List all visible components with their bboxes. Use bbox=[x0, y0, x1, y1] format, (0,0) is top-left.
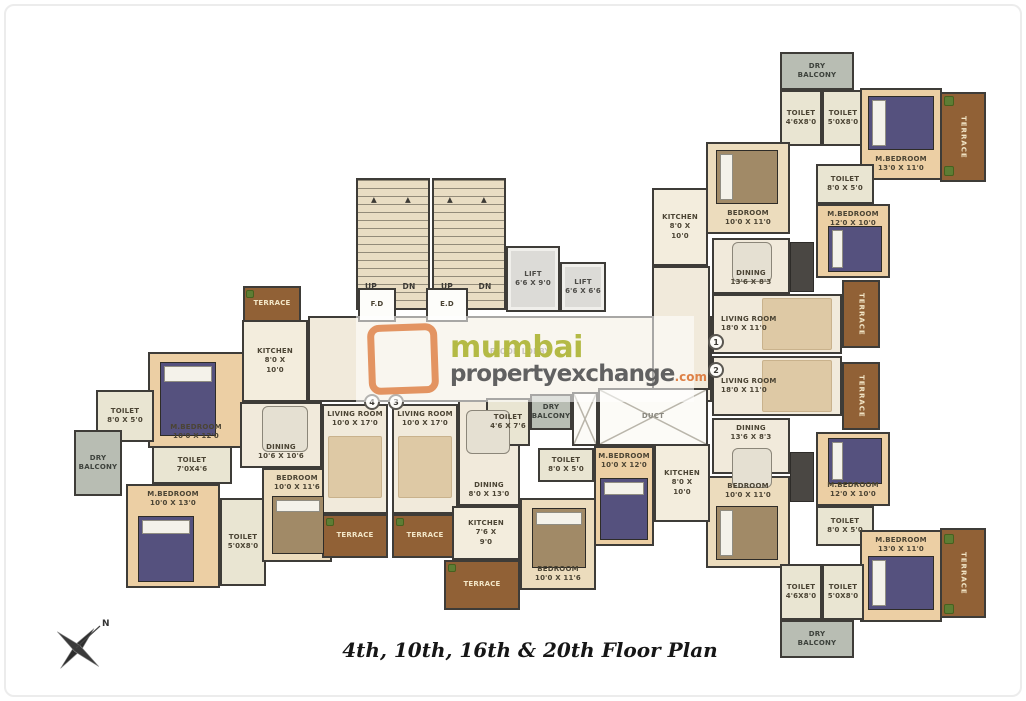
room-label-mbedroom-1b: M.BEDROOM12'0 X 10'0 bbox=[827, 210, 879, 228]
unit-marker-1: 1 bbox=[708, 334, 724, 350]
room-drybalcony-right-2: DRYBALCONY bbox=[780, 620, 854, 658]
room-label-terrace-2-side: TERRACE bbox=[856, 375, 865, 418]
bed-brown-furniture bbox=[272, 496, 324, 554]
room-label-toilet-2b: TOILET5'0X8'0 bbox=[828, 583, 859, 601]
bed-pillow bbox=[142, 520, 190, 534]
bed-pillow bbox=[832, 230, 843, 268]
bed-pillow bbox=[604, 482, 644, 495]
rug-furniture bbox=[398, 436, 452, 498]
wardrobe-furniture bbox=[790, 452, 814, 502]
room-label-dining-left: DINING10'6 X 10'6 bbox=[258, 443, 304, 461]
watermark-brand-suffix: .com bbox=[675, 371, 707, 383]
bed-pillow bbox=[276, 500, 320, 512]
room-label-up-label-1: UP bbox=[365, 282, 377, 292]
room-label-mbedroom-center: M.BEDROOM10'0 X 12'0 bbox=[598, 452, 650, 470]
floor-plan-image: DINING8'0 X 13'0LIFT6'6 X 9'0LIFT6'6 X 6… bbox=[0, 0, 1026, 701]
room-toilet-2a: TOILET4'6X8'0 bbox=[780, 564, 822, 620]
plant-furniture bbox=[396, 518, 404, 526]
room-label-toilet-left-3: TOILET5'0X8'0 bbox=[228, 533, 259, 551]
bed-brown-furniture bbox=[716, 150, 778, 204]
bed-pillow bbox=[720, 510, 733, 556]
room-label-dining-center: DINING8'0 X 13'0 bbox=[469, 481, 510, 499]
room-stair-arrow-4: ▲ bbox=[476, 194, 492, 206]
room-toilet-center-2: TOILET8'0 X 5'0 bbox=[538, 448, 594, 482]
room-lift-2: LIFT6'6 X 6'6 bbox=[560, 262, 606, 312]
room-toilet-1b: TOILET5'0X8'0 bbox=[822, 90, 864, 146]
room-label-toilet-2c: TOILET8'0 X 5'0 bbox=[827, 517, 863, 535]
plant-furniture bbox=[246, 290, 254, 298]
room-label-stair-arrow-3: ▲ bbox=[447, 195, 453, 205]
room-label-toilet-1a: TOILET4'6X8'0 bbox=[786, 109, 817, 127]
room-stair-arrow-1: ▲ bbox=[366, 194, 382, 206]
room-toilet-1c: TOILET8'0 X 5'0 bbox=[816, 164, 874, 204]
room-label-mbedroom-2b: M.BEDROOM12'0 X 10'0 bbox=[827, 481, 879, 499]
room-label-terrace-center: TERRACE bbox=[463, 580, 500, 589]
room-label-toilet-center-1: TOILET4'6 X 7'6 bbox=[490, 413, 526, 431]
plant-furniture bbox=[944, 166, 954, 176]
bed-pillow bbox=[832, 442, 843, 480]
room-label-dining-1: DINING13'6 X 8'3 bbox=[731, 269, 772, 287]
bed-pillow bbox=[164, 366, 212, 382]
room-label-ed-room: E.D bbox=[440, 300, 454, 309]
bed-pillow bbox=[536, 512, 582, 525]
room-toilet-left-2: TOILET7'0X4'6 bbox=[152, 446, 232, 484]
rug-furniture bbox=[328, 436, 382, 498]
plant-furniture bbox=[448, 564, 456, 572]
room-label-living-room-4: LIVING ROOM10'0 X 17'0 bbox=[327, 410, 383, 428]
room-label-duct: DUCT bbox=[642, 412, 664, 421]
room-label-toilet-1b: TOILET5'0X8'0 bbox=[828, 109, 859, 127]
room-label-stair-arrow-4: ▲ bbox=[481, 195, 487, 205]
bed-pillow bbox=[720, 154, 733, 200]
room-label-lift-2: LIFT6'6 X 6'6 bbox=[565, 278, 601, 296]
bed-pillow bbox=[872, 560, 886, 606]
room-label-up-label-2: UP bbox=[441, 282, 453, 292]
unit-marker-2: 2 bbox=[708, 362, 724, 378]
room-label-toilet-left-2: TOILET7'0X4'6 bbox=[177, 456, 208, 474]
room-label-kitchen-center: KITCHEN7'6 X9'0 bbox=[468, 519, 504, 546]
room-label-stair-arrow-2: ▲ bbox=[405, 195, 411, 205]
room-label-dn-label-1: DN bbox=[403, 282, 416, 292]
room-label-lift-1: LIFT6'6 X 9'0 bbox=[515, 270, 551, 288]
watermark-brand-bottom: propertyexchange bbox=[450, 363, 675, 386]
plan-title: 4th, 10th, 16th & 20th Floor Plan bbox=[280, 638, 780, 662]
room-label-living-room-3: LIVING ROOM10'0 X 17'0 bbox=[397, 410, 453, 428]
room-dn-label-2: DN bbox=[472, 280, 498, 294]
bed-purple-furniture bbox=[138, 516, 194, 582]
room-label-fd-room: F.D bbox=[371, 300, 384, 309]
watermark-text: mumbai propertyexchange.com bbox=[450, 333, 707, 386]
bed-purple-furniture bbox=[600, 478, 648, 540]
room-label-mbedroom-1a: M.BEDROOM13'0 X 11'0 bbox=[875, 155, 927, 173]
room-label-kitchen-1: KITCHEN8'0 X10'0 bbox=[662, 213, 698, 240]
room-label-toilet-2a: TOILET4'6X8'0 bbox=[786, 583, 817, 601]
compass-icon: N bbox=[42, 616, 114, 678]
room-label-mbedroom-left-2: M.BEDROOM10'0 X 13'0 bbox=[147, 490, 199, 508]
room-label-toilet-1c: TOILET8'0 X 5'0 bbox=[827, 175, 863, 193]
bed-purple-furniture bbox=[828, 226, 882, 272]
room-label-bedroom-1: BEDROOM10'0 X 11'0 bbox=[725, 209, 771, 227]
plant-furniture bbox=[326, 518, 334, 526]
room-toilet-2b: TOILET5'0X8'0 bbox=[822, 564, 864, 620]
room-stair-arrow-2: ▲ bbox=[400, 194, 416, 206]
room-label-stair-arrow-1: ▲ bbox=[371, 195, 377, 205]
room-label-living-room-1: LIVING ROOM18'0 X 11'0 bbox=[721, 315, 777, 333]
room-kitchen-center: KITCHEN7'6 X9'0 bbox=[452, 506, 520, 560]
room-kitchen-left: KITCHEN8'0 X10'0 bbox=[242, 320, 308, 402]
room-drybalcony-right-1: DRYBALCONY bbox=[780, 52, 854, 90]
room-label-dining-2: DINING13'6 X 8'3 bbox=[731, 424, 772, 442]
bed-pillow bbox=[872, 100, 886, 146]
room-dn-label-1: DN bbox=[396, 280, 422, 294]
room-label-drybalcony-left: DRYBALCONY bbox=[79, 454, 118, 472]
room-label-kitchen-left: KITCHEN8'0 X10'0 bbox=[257, 347, 293, 374]
room-label-drybalcony-center: DRYBALCONY bbox=[532, 403, 571, 421]
watermark-brand-top: mumbai bbox=[450, 333, 707, 363]
bed-brown-furniture bbox=[532, 508, 586, 568]
room-label-terrace-1-side: TERRACE bbox=[856, 293, 865, 336]
bed-purple-furniture bbox=[868, 96, 934, 150]
compass-north-label: N bbox=[102, 619, 110, 629]
room-label-bedroom-left: BEDROOM10'0 X 11'6 bbox=[274, 474, 320, 492]
watermark-logo-icon bbox=[367, 323, 439, 395]
plant-furniture bbox=[944, 604, 954, 614]
room-label-kitchen-2: KITCHEN8'0 X10'0 bbox=[664, 469, 700, 496]
room-toilet-1a: TOILET4'6X8'0 bbox=[780, 90, 822, 146]
room-label-terrace-top-left: TERRACE bbox=[253, 299, 290, 308]
room-label-terrace-4: TERRACE bbox=[336, 531, 373, 540]
room-label-mbedroom-2a: M.BEDROOM13'0 X 11'0 bbox=[875, 536, 927, 554]
plant-furniture bbox=[944, 96, 954, 106]
room-label-mbedroom-left-1: M.BEDROOM10'0 X 12'0 bbox=[170, 423, 222, 441]
room-label-bedroom-center: BEDROOM10'0 X 11'6 bbox=[535, 565, 581, 583]
room-kitchen-2: KITCHEN8'0 X10'0 bbox=[654, 444, 710, 522]
room-label-bedroom-2: BEDROOM10'0 X 11'0 bbox=[725, 482, 771, 500]
room-lift-1: LIFT6'6 X 9'0 bbox=[506, 246, 560, 312]
room-stair-arrow-3: ▲ bbox=[442, 194, 458, 206]
room-label-living-room-2: LIVING ROOM18'0 X 11'0 bbox=[721, 377, 777, 395]
room-label-terrace-1: TERRACE bbox=[958, 116, 967, 159]
room-label-toilet-center-2: TOILET8'0 X 5'0 bbox=[548, 456, 584, 474]
room-drybalcony-left: DRYBALCONY bbox=[74, 430, 122, 496]
room-label-terrace-2: TERRACE bbox=[958, 552, 967, 595]
bed-brown-furniture bbox=[716, 506, 778, 560]
room-label-toilet-left-1: TOILET8'0 X 5'0 bbox=[107, 407, 143, 425]
bed-purple-furniture bbox=[828, 438, 882, 484]
room-terrace-1-side: TERRACE bbox=[842, 280, 880, 348]
room-label-drybalcony-right-2: DRYBALCONY bbox=[798, 630, 837, 648]
room-label-terrace-3: TERRACE bbox=[406, 531, 443, 540]
bed-purple-furniture bbox=[868, 556, 934, 610]
room-terrace-2-side: TERRACE bbox=[842, 362, 880, 430]
room-up-label-2: UP bbox=[434, 280, 460, 294]
room-toilet-left-3: TOILET5'0X8'0 bbox=[220, 498, 266, 586]
room-label-dn-label-2: DN bbox=[479, 282, 492, 292]
room-up-label-1: UP bbox=[358, 280, 384, 294]
room-kitchen-1: KITCHEN8'0 X10'0 bbox=[652, 188, 708, 266]
watermark: mumbai propertyexchange.com bbox=[356, 316, 694, 402]
room-label-drybalcony-right-1: DRYBALCONY bbox=[798, 62, 837, 80]
wardrobe-furniture bbox=[790, 242, 814, 292]
plant-furniture bbox=[944, 534, 954, 544]
